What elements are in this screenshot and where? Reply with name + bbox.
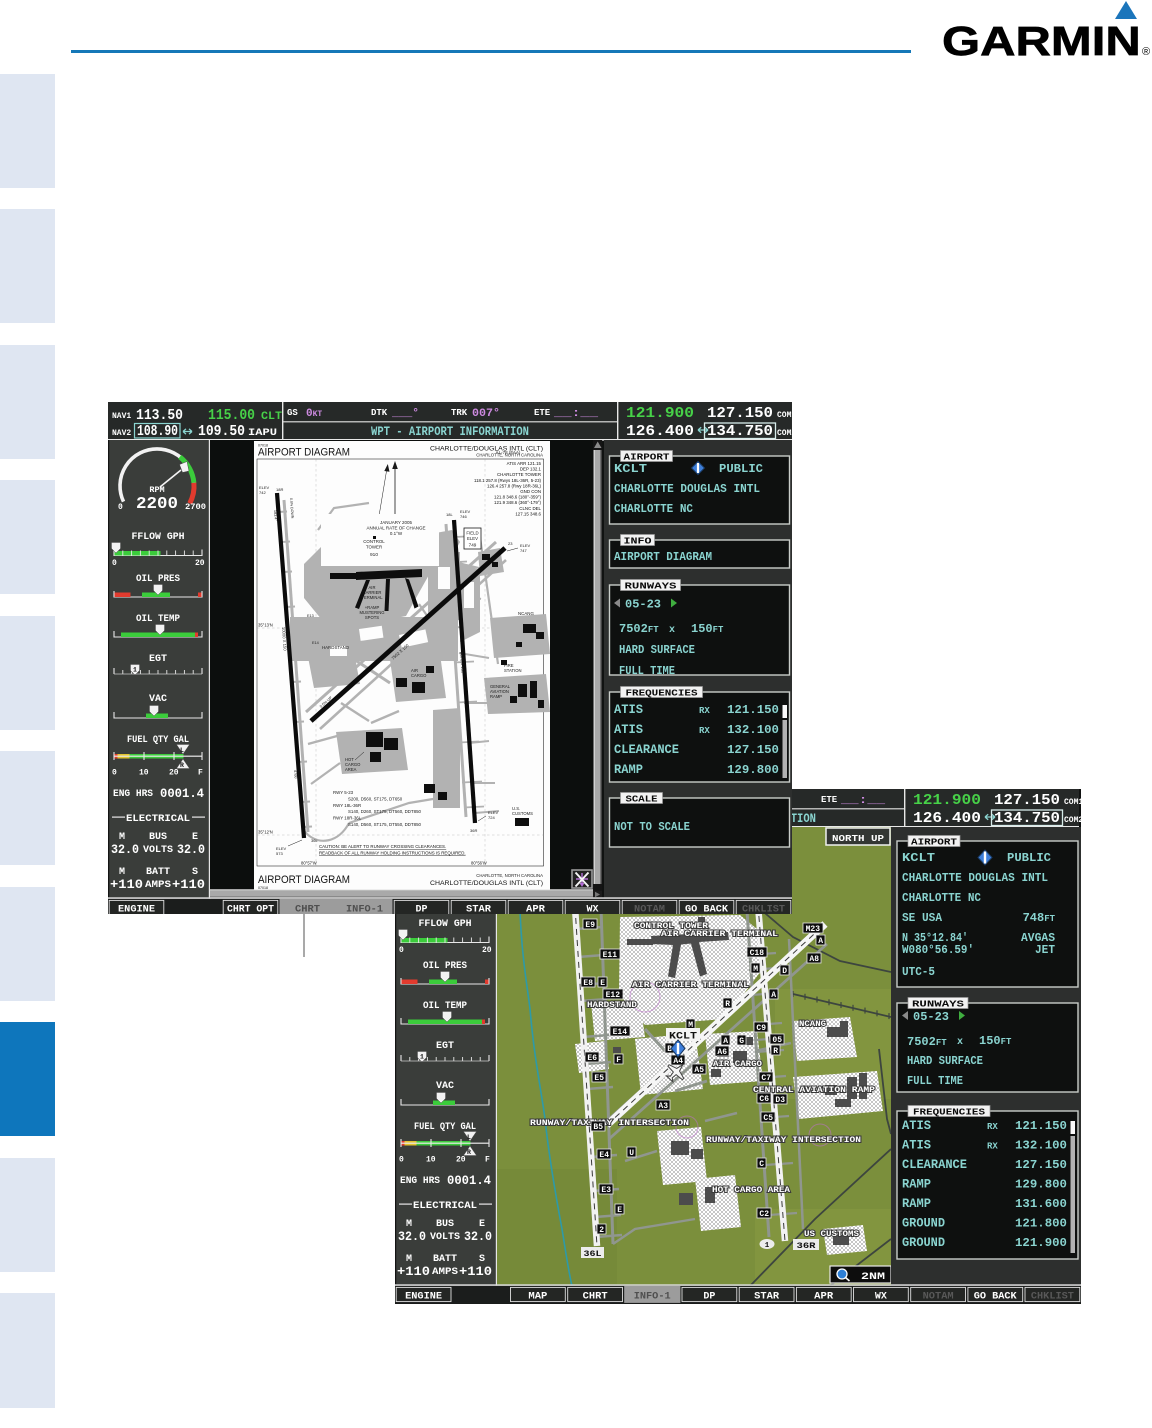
svg-text:ELECTRICAL: ELECTRICAL	[126, 813, 190, 825]
svg-text:S140, D260, ST175, DT560, DDT8: S140, D260, ST175, DT560, DDT850	[348, 809, 422, 814]
svg-text:DP: DP	[416, 904, 428, 915]
svg-text:724: 724	[488, 815, 495, 820]
svg-text:F: F	[198, 769, 203, 778]
svg-text:PUBLIC: PUBLIC	[1007, 851, 1051, 865]
svg-text:E13: E13	[307, 614, 314, 618]
svg-text:VAC: VAC	[149, 694, 167, 705]
svg-text:2NM: 2NM	[861, 1271, 885, 1283]
svg-text:VOLTS: VOLTS	[430, 1232, 460, 1243]
svg-text:FULL TIME: FULL TIME	[907, 1074, 963, 1088]
svg-text:R: R	[467, 1149, 471, 1156]
svg-text:0: 0	[112, 769, 117, 778]
svg-text:131.600: 131.600	[1015, 1197, 1067, 1211]
svg-text:DEP 132.1: DEP 132.1	[520, 467, 542, 472]
svg-text:TOWER: TOWER	[366, 545, 382, 550]
svg-text:746: 746	[460, 514, 467, 519]
svg-text:7502FT: 7502FT	[907, 1035, 947, 1049]
svg-text:FREQUENCIES: FREQUENCIES	[626, 688, 698, 699]
svg-text:STAR: STAR	[754, 1291, 780, 1303]
svg-text:CAUTION: BE ALERT TO RUNWAY CR: CAUTION: BE ALERT TO RUNWAY CROSSING CLE…	[319, 844, 446, 849]
svg-text:E: E	[617, 1206, 622, 1215]
svg-text:NOTAM: NOTAM	[923, 1291, 954, 1303]
svg-text:0001.4: 0001.4	[447, 1173, 491, 1188]
svg-text:E12: E12	[606, 991, 621, 1000]
svg-text:E6: E6	[587, 1054, 597, 1063]
svg-text:10: 10	[426, 1156, 436, 1165]
svg-text:121.8 348.6 (180°-359°): 121.8 348.6 (180°-359°)	[494, 495, 542, 500]
svg-text:747: 747	[520, 548, 527, 553]
svg-text:CHARLOTTE DOUGLAS INTL: CHARLOTTE DOUGLAS INTL	[614, 482, 760, 496]
svg-text:WX: WX	[587, 904, 600, 915]
svg-text:AREA: AREA	[345, 767, 357, 772]
svg-text:RX: RX	[699, 706, 710, 716]
svg-text:RUNWAY/TAXIWAY INTERSECTION: RUNWAY/TAXIWAY INTERSECTION	[706, 1135, 861, 1145]
svg-text:18R: 18R	[276, 487, 283, 492]
svg-text:S200, D560, ST175, DT650: S200, D560, ST175, DT650	[348, 796, 403, 801]
svg-text:INFO-1: INFO-1	[634, 1291, 671, 1303]
svg-text:E4: E4	[599, 1151, 609, 1160]
svg-text:RPM: RPM	[149, 485, 164, 495]
svg-text:A: A	[723, 1037, 728, 1046]
svg-text:PUBLIC: PUBLIC	[719, 462, 763, 476]
svg-text:HARDSTAND: HARDSTAND	[587, 1000, 637, 1010]
svg-text:2200: 2200	[136, 495, 178, 514]
svg-text:23: 23	[508, 541, 513, 546]
svg-text:MAP: MAP	[528, 1291, 547, 1303]
svg-text:ATIS ARR 121.15: ATIS ARR 121.15	[507, 461, 542, 466]
svg-text:AIR CARGO: AIR CARGO	[713, 1059, 762, 1069]
svg-text:OIL PRES: OIL PRES	[136, 574, 180, 585]
svg-text:GO BACK: GO BACK	[685, 904, 729, 915]
svg-text:RAMP: RAMP	[614, 762, 643, 777]
svg-text:CHARLOTTE TOWER: CHARLOTTE TOWER	[497, 472, 541, 477]
svg-text:RUNWAY/TAXIWAY INTERSECTION: RUNWAY/TAXIWAY INTERSECTION	[530, 1118, 689, 1128]
svg-text:CHRT OPT: CHRT OPT	[227, 904, 274, 915]
svg-text:ANNUAL RATE OF CHANGE: ANNUAL RATE OF CHANGE	[366, 526, 425, 531]
svg-text:KCLT: KCLT	[669, 1032, 697, 1043]
svg-text:OIL TEMP: OIL TEMP	[136, 614, 180, 625]
svg-text:C: C	[759, 1160, 764, 1169]
svg-text:CLEARANCE: CLEARANCE	[614, 742, 679, 757]
svg-text:CHKLIST: CHKLIST	[1031, 1291, 1074, 1303]
svg-text:F: F	[485, 1156, 490, 1165]
svg-text:COM2: COM2	[777, 429, 792, 438]
svg-text:0: 0	[399, 1156, 404, 1165]
svg-text:18L: 18L	[446, 512, 453, 517]
svg-text:C18: C18	[750, 949, 765, 958]
svg-text:EGT: EGT	[436, 1041, 454, 1052]
svg-text:CLT: CLT	[261, 411, 282, 423]
svg-text:113.50: 113.50	[136, 408, 183, 424]
svg-text:127.150: 127.150	[727, 743, 779, 757]
svg-text:121.900: 121.900	[1015, 1236, 1067, 1250]
svg-text:35°12'N: 35°12'N	[258, 830, 273, 835]
svg-text:748FT: 748FT	[1023, 911, 1056, 925]
svg-text:126.400: 126.400	[626, 424, 694, 440]
svg-text:910: 910	[370, 552, 378, 558]
svg-text:ENG HRS: ENG HRS	[113, 789, 153, 800]
svg-text:U: U	[629, 1149, 634, 1158]
svg-text:TERMINAL: TERMINAL	[361, 595, 383, 600]
svg-text:AL-78 (FAA): AL-78 (FAA)	[496, 450, 521, 455]
svg-text:WPT - AIRPORT INFORMATION: WPT - AIRPORT INFORMATION	[371, 425, 529, 439]
svg-text:ETE: ETE	[821, 795, 838, 805]
svg-text:AIRPORT DIAGRAM: AIRPORT DIAGRAM	[258, 874, 350, 886]
svg-text:05: 05	[772, 1036, 782, 1045]
svg-text:FFLOW GPH: FFLOW GPH	[132, 532, 185, 543]
svg-text:GO BACK: GO BACK	[974, 1291, 1018, 1303]
svg-text:D3: D3	[775, 1096, 785, 1105]
svg-text:WX: WX	[875, 1291, 888, 1303]
svg-text:NCANG: NCANG	[518, 611, 534, 616]
svg-text:+110: +110	[459, 1264, 492, 1279]
svg-text:JET: JET	[1035, 943, 1055, 957]
svg-text:NORTH UP: NORTH UP	[832, 833, 884, 844]
svg-text:SE USA: SE USA	[902, 911, 943, 925]
svg-text:STAR: STAR	[466, 904, 492, 915]
svg-text:CHARLOTTE NC: CHARLOTTE NC	[614, 502, 693, 516]
svg-text:C9: C9	[756, 1024, 766, 1033]
svg-text:A: A	[818, 937, 823, 946]
svg-text:NAV2: NAV2	[112, 429, 131, 438]
svg-text:M: M	[753, 965, 758, 974]
svg-text:A8: A8	[809, 955, 819, 964]
svg-text:121.9 348.6 (360°-179°): 121.9 348.6 (360°-179°)	[494, 500, 542, 505]
svg-text:FULL TIME: FULL TIME	[619, 664, 675, 678]
svg-text:CONTROL: CONTROL	[363, 539, 385, 544]
svg-text:121.800: 121.800	[1015, 1217, 1067, 1231]
svg-text:ENGINE: ENGINE	[405, 1291, 442, 1303]
svg-text:KCLT: KCLT	[614, 462, 647, 476]
svg-text:NAV1: NAV1	[112, 412, 131, 421]
svg-text:E9: E9	[585, 921, 595, 930]
svg-text:20: 20	[482, 946, 492, 955]
svg-text:A6: A6	[717, 1048, 727, 1057]
svg-text:E14: E14	[312, 641, 319, 645]
svg-text:+110: +110	[397, 1264, 430, 1279]
svg-text:___°: ___°	[391, 408, 419, 420]
svg-text:G: G	[739, 1037, 744, 1046]
svg-text:1: 1	[133, 667, 137, 674]
svg-text:OIL PRES: OIL PRES	[423, 961, 467, 972]
svg-text:APR: APR	[814, 1291, 834, 1303]
svg-text:R: R	[725, 1000, 730, 1009]
svg-text:CHRT: CHRT	[583, 1291, 608, 1303]
svg-text:132.100: 132.100	[727, 723, 779, 737]
svg-text:109.50: 109.50	[198, 424, 245, 440]
svg-text:FREQUENCIES: FREQUENCIES	[913, 1107, 985, 1118]
svg-text:20: 20	[195, 559, 205, 568]
svg-text:AMPS: AMPS	[145, 880, 171, 891]
svg-text:COM1: COM1	[1064, 798, 1081, 807]
svg-text:CHARLOTTE, NORTH CAROLINA: CHARLOTTE, NORTH CAROLINA	[476, 873, 543, 878]
svg-text:183.4°: 183.4°	[273, 510, 278, 522]
svg-text:121.900: 121.900	[913, 793, 981, 809]
svg-text:GROUND: GROUND	[902, 1235, 945, 1250]
svg-text:HARDSTAND: HARDSTAND	[322, 645, 349, 650]
svg-text:1: 1	[765, 1242, 770, 1250]
svg-text:CHARLOTTE/DOUGLAS INTL (CLT): CHARLOTTE/DOUGLAS INTL (CLT)	[430, 880, 543, 887]
svg-text:0.1°W: 0.1°W	[390, 531, 403, 536]
svg-text:S140, D560, ST175, DT550, DDT8: S140, D560, ST175, DT550, DDT850	[348, 822, 422, 827]
svg-text:READBACK OF ALL RUNWAY HOLDING: READBACK OF ALL RUNWAY HOLDING INSTRUCTI…	[319, 851, 466, 856]
svg-text:x: x	[669, 625, 675, 636]
svg-text:SPOTS: SPOTS	[365, 615, 379, 620]
svg-text:AMPS: AMPS	[432, 1267, 458, 1278]
svg-text:FFLOW GPH: FFLOW GPH	[419, 919, 472, 930]
svg-text:RWY 18R-36L: RWY 18R-36L	[333, 816, 362, 821]
svg-text:HOT CARGO AREA: HOT CARGO AREA	[712, 1185, 791, 1195]
svg-text:UTC-5: UTC-5	[902, 965, 935, 979]
svg-text:7502FT: 7502FT	[619, 622, 659, 636]
svg-text:32.0: 32.0	[464, 1229, 492, 1244]
svg-text:ELECTRICAL: ELECTRICAL	[413, 1200, 477, 1212]
svg-text:AIR CARRIER TERMINAL: AIR CARRIER TERMINAL	[661, 929, 778, 939]
svg-text:573: 573	[276, 851, 283, 856]
svg-text:ENG HRS: ENG HRS	[400, 1176, 440, 1187]
svg-text:JANUARY 2005: JANUARY 2005	[380, 520, 413, 525]
svg-text:x: x	[957, 1037, 963, 1048]
svg-text:C6: C6	[759, 1095, 769, 1104]
svg-text:ATIS: ATIS	[614, 702, 643, 717]
svg-text:20: 20	[456, 1156, 466, 1165]
svg-text:121.150: 121.150	[1015, 1119, 1067, 1133]
svg-text:E3: E3	[601, 1186, 611, 1195]
svg-text:0: 0	[118, 503, 123, 512]
svg-text:RWY 18L-36R: RWY 18L-36R	[333, 803, 361, 808]
svg-text:2700: 2700	[185, 503, 206, 512]
svg-text:A3: A3	[658, 1102, 668, 1111]
svg-text:RWY 5-23: RWY 5-23	[333, 790, 354, 795]
svg-text:A4: A4	[673, 1057, 683, 1066]
svg-text:0: 0	[399, 946, 404, 955]
svg-text:M23: M23	[806, 925, 821, 934]
svg-text:20: 20	[169, 769, 179, 778]
svg-text:32.0: 32.0	[398, 1229, 426, 1244]
svg-text:05-23: 05-23	[913, 1010, 949, 1024]
svg-text:4700: 4700	[293, 770, 298, 779]
svg-text:0: 0	[112, 559, 117, 568]
svg-text:INFO-1: INFO-1	[346, 904, 383, 915]
svg-text:RX: RX	[699, 726, 710, 736]
svg-text:05-23: 05-23	[625, 598, 661, 612]
svg-text:115.00: 115.00	[208, 408, 255, 424]
svg-text:1: 1	[420, 1054, 424, 1061]
svg-text:__:__: __:__	[840, 795, 886, 807]
svg-text:COM1: COM1	[777, 411, 792, 420]
svg-text:AIRPORT DIAGRAM: AIRPORT DIAGRAM	[258, 447, 350, 459]
svg-text:ELEV: ELEV	[467, 536, 478, 541]
svg-text:INFO: INFO	[624, 536, 652, 547]
svg-text:RX: RX	[987, 1142, 998, 1152]
svg-text:80°57'W: 80°57'W	[301, 861, 317, 866]
svg-text:RUNWAYS: RUNWAYS	[912, 999, 964, 1010]
svg-text:32.0: 32.0	[111, 842, 139, 857]
svg-text:2: 2	[599, 1226, 604, 1235]
svg-text:OIL TEMP: OIL TEMP	[423, 1001, 467, 1012]
svg-text:W080°56.59': W080°56.59'	[902, 943, 974, 957]
svg-text:AIRPORT DIAGRAM: AIRPORT DIAGRAM	[614, 550, 712, 564]
svg-text:118.1 257.8 (Rwys 18L-36R, 5-2: 118.1 257.8 (Rwys 18L-36R, 5-23)	[474, 478, 542, 483]
svg-text:TRK: TRK	[451, 408, 468, 418]
svg-text:129.800: 129.800	[727, 763, 779, 777]
svg-text:RX: RX	[987, 1122, 998, 1132]
svg-text:BUS: BUS	[149, 832, 167, 843]
svg-text:STATION: STATION	[504, 668, 522, 673]
svg-text:ENGINE: ENGINE	[118, 904, 155, 915]
svg-text:E8: E8	[583, 979, 593, 988]
svg-text:127.150: 127.150	[994, 793, 1060, 809]
svg-text:__:__: __:__	[553, 408, 599, 420]
svg-text:DTK: DTK	[371, 408, 388, 418]
svg-text:121.150: 121.150	[727, 703, 779, 717]
svg-text:B5: B5	[593, 1123, 603, 1132]
svg-text:CLNC DEL: CLNC DEL	[519, 506, 541, 511]
svg-text:ATIS: ATIS	[902, 1118, 931, 1133]
svg-text:126.4 257.8 (Rwy 18R-36L): 126.4 257.8 (Rwy 18R-36L)	[487, 483, 541, 488]
svg-text:AIRPORT: AIRPORT	[624, 452, 670, 463]
svg-text:RAMP: RAMP	[490, 694, 502, 699]
svg-text:0001.4: 0001.4	[160, 786, 204, 801]
svg-text:US CUSTOMS: US CUSTOMS	[804, 1229, 859, 1239]
svg-text:C7: C7	[761, 1074, 771, 1083]
svg-text:GROUND: GROUND	[902, 1216, 945, 1231]
svg-text:127.150: 127.150	[1015, 1158, 1067, 1172]
svg-text:CHARLOTTE NC: CHARLOTTE NC	[902, 891, 981, 905]
svg-text:R: R	[180, 762, 184, 769]
svg-text:134.750: 134.750	[707, 424, 773, 440]
svg-text:0KT: 0KT	[306, 408, 322, 420]
svg-text:VAC: VAC	[436, 1081, 454, 1092]
svg-text:DP: DP	[703, 1291, 715, 1303]
svg-text:NOTAM: NOTAM	[634, 904, 665, 915]
svg-text:HARD SURFACE: HARD SURFACE	[907, 1054, 983, 1068]
svg-text:ETE: ETE	[534, 408, 551, 418]
svg-text:C5: C5	[763, 1114, 773, 1123]
svg-text:NOT TO SCALE: NOT TO SCALE	[614, 820, 690, 834]
svg-text:CHKLIST: CHKLIST	[742, 904, 785, 915]
svg-text:80°56'W: 80°56'W	[471, 861, 487, 866]
svg-text:007°: 007°	[472, 408, 500, 420]
svg-text:L: L	[180, 747, 184, 754]
svg-text:IAPU: IAPU	[248, 428, 277, 439]
svg-text:E5: E5	[594, 1074, 604, 1083]
svg-text:F: F	[616, 1056, 621, 1065]
svg-text:NCANG: NCANG	[799, 1019, 826, 1029]
svg-text:134.750: 134.750	[994, 811, 1060, 827]
svg-text:742: 742	[259, 490, 266, 495]
svg-text:CHARLOTTE/DOUGLAS INTL (CLT): CHARLOTTE/DOUGLAS INTL (CLT)	[430, 446, 543, 453]
svg-text:E14: E14	[613, 1028, 628, 1037]
svg-text:CARGO: CARGO	[411, 673, 427, 678]
svg-text:AIR CARRIER TERMINAL: AIR CARRIER TERMINAL	[632, 980, 749, 990]
svg-text:RUNWAYS: RUNWAYS	[625, 581, 677, 592]
svg-text:36L: 36L	[584, 1249, 602, 1259]
svg-text:SCALE: SCALE	[626, 794, 658, 805]
svg-text:32.0: 32.0	[177, 842, 205, 857]
svg-text:BUS: BUS	[436, 1219, 454, 1230]
svg-text:36R: 36R	[797, 1241, 817, 1251]
svg-text:VOLTS: VOLTS	[143, 845, 173, 856]
svg-text:BATT: BATT	[433, 1254, 457, 1265]
svg-text:A5: A5	[694, 1066, 704, 1075]
svg-text:RAMP: RAMP	[902, 1196, 931, 1211]
svg-text:HARD SURFACE: HARD SURFACE	[619, 643, 695, 657]
svg-text:A: A	[771, 991, 776, 1000]
svg-text:150FT: 150FT	[691, 622, 724, 636]
svg-text:10: 10	[139, 769, 149, 778]
svg-text:APR: APR	[526, 904, 546, 915]
svg-text:C2: C2	[759, 1210, 769, 1219]
svg-text:36R: 36R	[470, 828, 477, 833]
svg-text:ATIS: ATIS	[902, 1138, 931, 1153]
svg-text:121.900: 121.900	[626, 406, 694, 422]
svg-text:CUSTOMS: CUSTOMS	[512, 811, 533, 816]
svg-text:BATT: BATT	[146, 867, 170, 878]
svg-text:RAMP: RAMP	[902, 1177, 931, 1192]
svg-text:127.15 348.6: 127.15 348.6	[515, 511, 541, 516]
svg-text:+110: +110	[172, 877, 205, 892]
svg-text:749: 749	[469, 543, 477, 548]
svg-text:E11: E11	[603, 951, 618, 960]
svg-text:AIRPORT: AIRPORT	[911, 837, 957, 848]
svg-text:127.150: 127.150	[707, 406, 773, 422]
svg-text:D: D	[782, 967, 787, 976]
svg-text:EGT: EGT	[149, 654, 167, 665]
svg-text:CHARLOTTE DOUGLAS INTL: CHARLOTTE DOUGLAS INTL	[902, 871, 1048, 885]
svg-text:150FT: 150FT	[979, 1034, 1012, 1048]
svg-text:COM2: COM2	[1064, 816, 1081, 825]
svg-text:FIELD: FIELD	[466, 531, 478, 536]
svg-text:126.400: 126.400	[913, 811, 981, 827]
svg-text:129.800: 129.800	[1015, 1178, 1067, 1192]
svg-text:108.90: 108.90	[137, 424, 178, 440]
svg-text:36L: 36L	[311, 838, 318, 843]
svg-text:132.100: 132.100	[1015, 1139, 1067, 1153]
svg-text:CHRT: CHRT	[295, 904, 320, 915]
svg-text:KCLT: KCLT	[902, 851, 935, 865]
svg-text:GND CON: GND CON	[520, 489, 541, 494]
svg-text:L: L	[467, 1134, 471, 1141]
svg-text:CLEARANCE: CLEARANCE	[902, 1157, 967, 1172]
svg-text:E: E	[600, 979, 605, 988]
svg-text:R: R	[773, 1047, 778, 1056]
svg-text:ATIS: ATIS	[614, 722, 643, 737]
svg-text:+110: +110	[110, 877, 143, 892]
svg-text:GS: GS	[287, 408, 298, 418]
svg-text:35°13'N: 35°13'N	[258, 623, 273, 628]
